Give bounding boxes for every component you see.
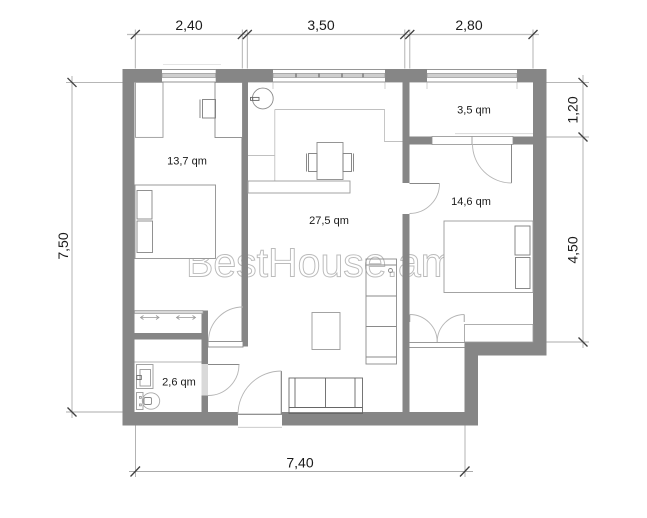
svg-text:7,50: 7,50 <box>55 232 71 259</box>
svg-text:2,6 qm: 2,6 qm <box>162 377 196 389</box>
svg-text:14,6 qm: 14,6 qm <box>451 196 491 208</box>
svg-text:1,20: 1,20 <box>565 96 581 123</box>
svg-text:3,50: 3,50 <box>307 17 334 33</box>
svg-text:3,5 qm: 3,5 qm <box>457 105 491 117</box>
svg-text:13,7 qm: 13,7 qm <box>167 156 207 168</box>
svg-text:4,50: 4,50 <box>565 236 581 263</box>
svg-text:27,5 qm: 27,5 qm <box>309 215 349 227</box>
svg-text:7,40: 7,40 <box>286 455 313 471</box>
svg-text:BestHouse.am: BestHouse.am <box>186 240 455 286</box>
svg-text:2,80: 2,80 <box>455 17 482 33</box>
svg-text:2,40: 2,40 <box>175 17 202 33</box>
